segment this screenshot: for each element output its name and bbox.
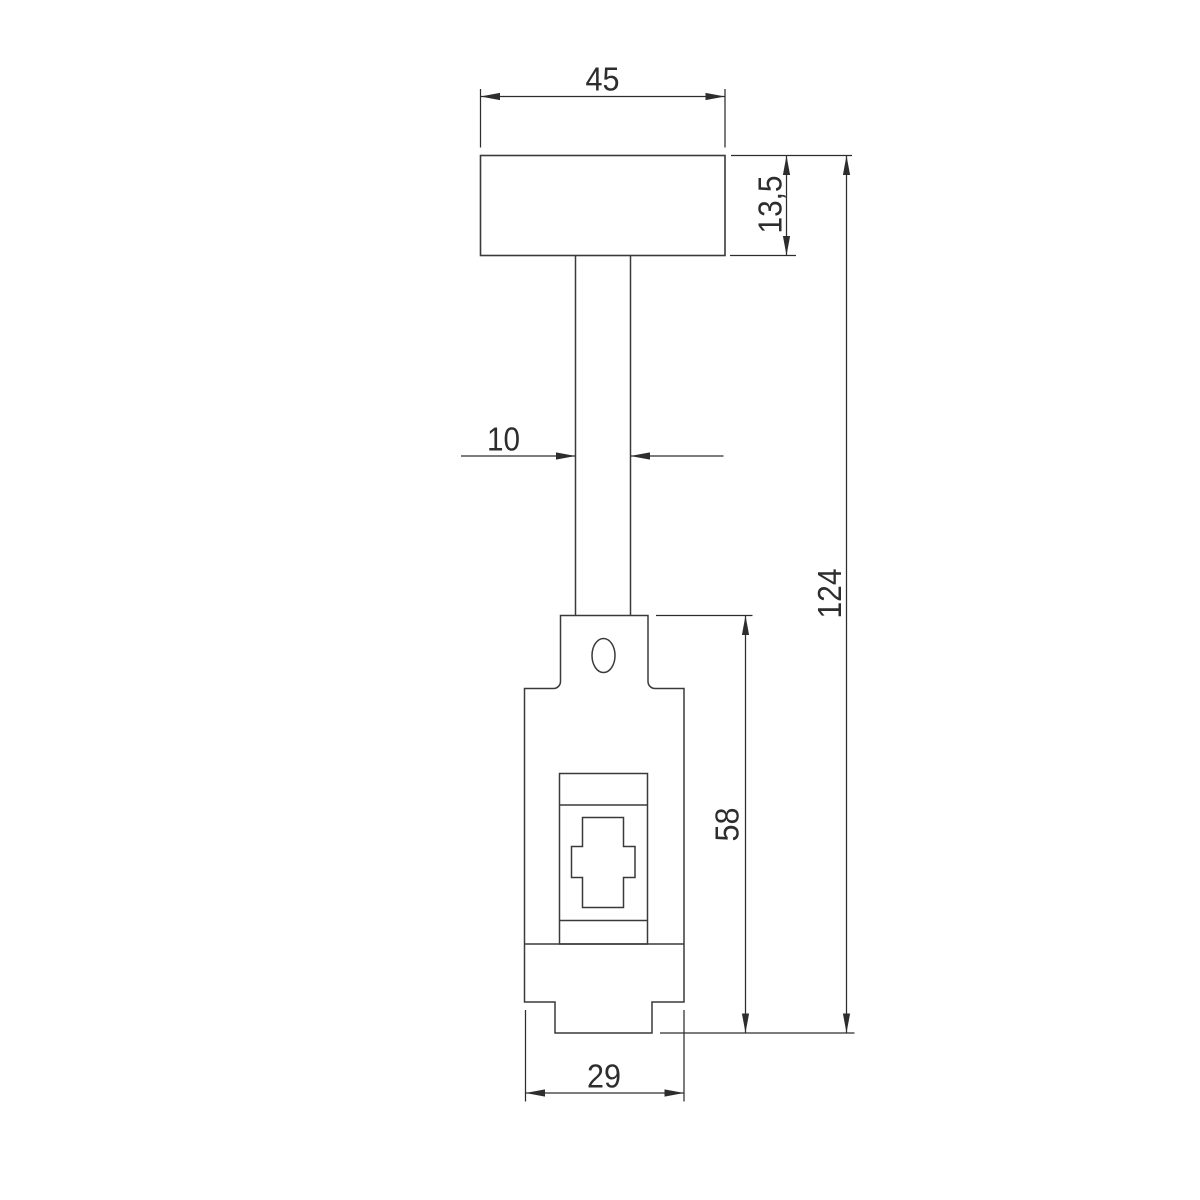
svg-text:13,5: 13,5 [752,176,789,234]
svg-text:29: 29 [587,1058,621,1095]
svg-text:124: 124 [811,569,848,619]
svg-text:58: 58 [709,808,746,842]
svg-text:45: 45 [586,61,620,98]
svg-text:10: 10 [487,421,520,458]
